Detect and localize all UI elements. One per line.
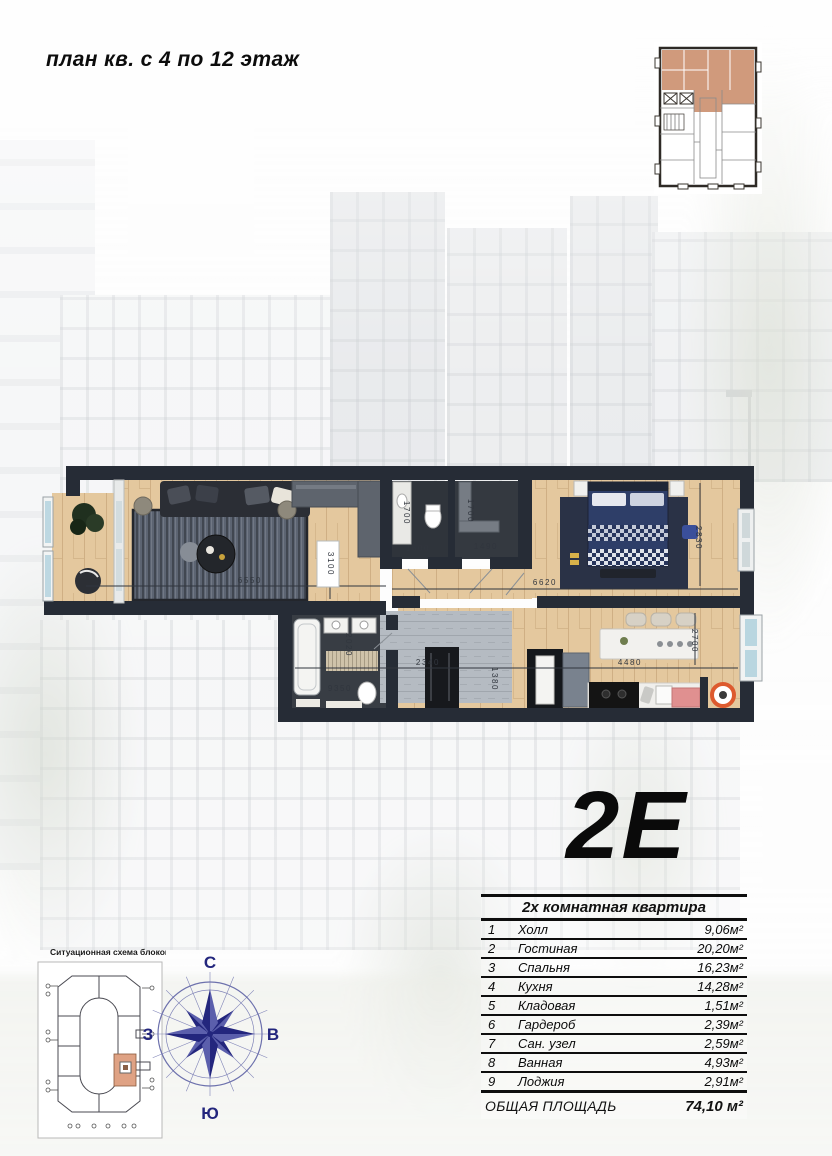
row-number: 2 <box>481 941 518 956</box>
table-row: 7 Сан. узел 2,59м² <box>481 1035 747 1054</box>
area-table-header: 2х комнатная квартира <box>481 894 747 921</box>
room-name: Спальня <box>518 960 643 975</box>
room-name: Ванная <box>518 1055 643 1070</box>
pantry-door <box>536 656 554 704</box>
stool-3 <box>676 613 696 626</box>
dim-niche-width: 1380 <box>490 667 499 691</box>
room-name: Лоджия <box>518 1074 643 1089</box>
room-name: Сан. узел <box>518 1036 643 1051</box>
total-row: ОБЩАЯ ПЛОЩАДЬ 74,10 м² <box>481 1092 747 1119</box>
dim-bedroom-width: 6620 <box>533 578 557 587</box>
bed-bench <box>600 569 656 578</box>
dim-living-depth: 3100 <box>326 552 335 576</box>
fridge <box>563 653 589 707</box>
table-row: 9 Лоджия 2,91м² <box>481 1073 747 1092</box>
compass-west-label: З <box>143 1025 154 1044</box>
row-number: 4 <box>481 979 518 994</box>
total-label: ОБЩАЯ ПЛОЩАДЬ <box>481 1098 685 1114</box>
room-name: Гардероб <box>518 1017 643 1032</box>
dim-bath-depth: 2020 <box>344 633 353 657</box>
dim-storage-width: 1490 <box>474 542 498 551</box>
cooktop <box>589 682 639 708</box>
row-number: 7 <box>481 1036 518 1051</box>
table-row: 3 Спальня 16,23м² <box>481 959 747 978</box>
dim-bedroom-depth: 2830 <box>694 526 703 550</box>
room-name: Кухня <box>518 979 643 994</box>
row-number: 8 <box>481 1055 518 1070</box>
room-area: 4,93м² <box>643 1055 747 1070</box>
nightstand-left <box>574 481 588 496</box>
bath-toilet <box>358 682 376 704</box>
total-area: 74,10 м² <box>685 1098 747 1115</box>
kitchen-sink <box>656 686 672 704</box>
row-number: 3 <box>481 960 518 975</box>
dim-living-width: 6550 <box>238 576 262 585</box>
key-plan <box>652 38 768 200</box>
coffee-table <box>197 535 235 573</box>
table-row: 8 Ванная 4,93м² <box>481 1054 747 1073</box>
dim-wc-depth: 1700 <box>402 501 411 525</box>
kitchen-island <box>600 629 698 659</box>
nightstand-right <box>670 481 684 496</box>
room-area: 20,20м² <box>643 941 747 956</box>
compass-east-label: В <box>267 1025 279 1044</box>
row-number: 5 <box>481 998 518 1013</box>
table-row: 6 Гардероб 2,39м² <box>481 1016 747 1035</box>
row-number: 1 <box>481 922 518 937</box>
pink-tray <box>672 688 700 707</box>
dim-kitchen-depth: 2700 <box>690 629 699 653</box>
dim-wc-width: 1600 <box>406 544 430 553</box>
room-area: 9,06м² <box>643 922 747 937</box>
room-area: 16,23м² <box>643 960 747 975</box>
table-row: 1 Холл 9,06м² <box>481 921 747 940</box>
row-number: 9 <box>481 1074 518 1089</box>
compass-north-label: С <box>204 953 216 972</box>
room-name: Холл <box>518 922 643 937</box>
room-area: 2,91м² <box>643 1074 747 1089</box>
row-number: 6 <box>481 1017 518 1032</box>
room-name: Кладовая <box>518 998 643 1013</box>
plan-sheet: план кв. с 4 по 12 этаж <box>0 0 832 1156</box>
room-area: 14,28м² <box>643 979 747 994</box>
table-row: 2 Гостиная 20,20м² <box>481 940 747 959</box>
stool-1 <box>626 613 646 626</box>
room-area: 1,51м² <box>643 998 747 1013</box>
compass-south-label: Ю <box>201 1104 219 1123</box>
compass-rose: С Ю З В <box>138 948 282 1124</box>
floor-plan: 6550 3100 1700 1600 1700 1490 6620 2830 … <box>40 453 770 748</box>
dim-storage-depth: 1700 <box>466 499 475 523</box>
bedroom-furniture <box>560 481 698 589</box>
unit-code: 2E <box>566 782 687 870</box>
hall-upper-floor <box>392 569 532 599</box>
stool-2 <box>651 613 671 626</box>
page-title: план кв. с 4 по 12 этаж <box>46 48 299 72</box>
area-table: 2х комнатная квартира 1 Холл 9,06м² 2 Го… <box>481 894 747 1119</box>
side-table-left <box>134 497 152 515</box>
dim-corridor-length: 9350 <box>328 684 352 693</box>
room-area: 2,39м² <box>643 1017 747 1032</box>
table-row: 5 Кладовая 1,51м² <box>481 997 747 1016</box>
dim-hall-width: 2340 <box>416 658 440 667</box>
room-area: 2,59м² <box>643 1036 747 1051</box>
room-name: Гостиная <box>518 941 643 956</box>
table-row: 4 Кухня 14,28м² <box>481 978 747 997</box>
dim-kitchen-width: 4480 <box>618 658 642 667</box>
